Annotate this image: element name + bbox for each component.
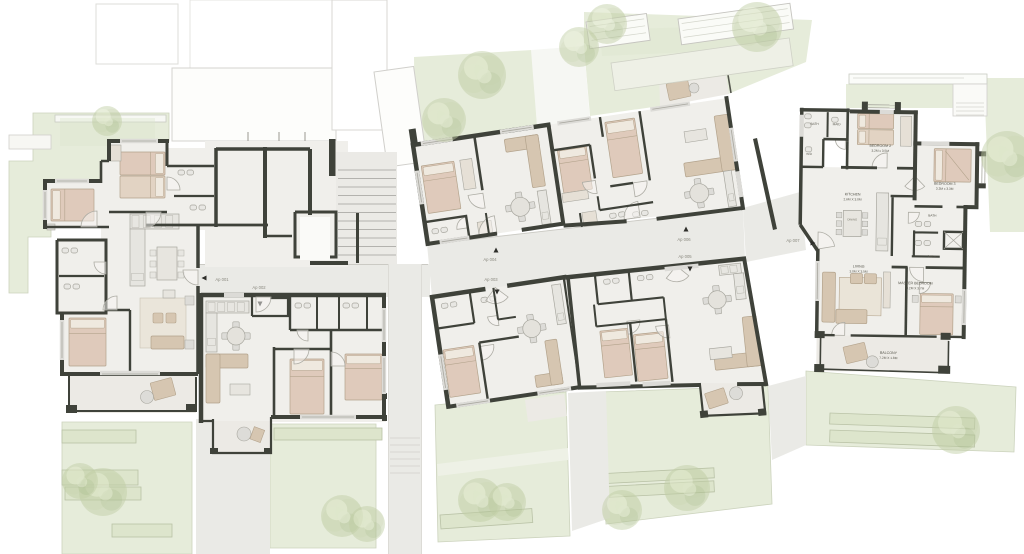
svg-text:MAID: MAID xyxy=(833,122,842,126)
svg-text:2.6M X 3.0M: 2.6M X 3.0M xyxy=(843,197,861,201)
svg-text:LIVING: LIVING xyxy=(853,264,865,268)
svg-text:3.2M X 3.7M: 3.2M X 3.7M xyxy=(906,286,924,290)
svg-text:Ap 003: Ap 003 xyxy=(484,277,498,282)
svg-text:Ap 001: Ap 001 xyxy=(215,277,229,282)
svg-text:BATH: BATH xyxy=(928,255,937,259)
svg-text:BEDROOM 2: BEDROOM 2 xyxy=(869,144,891,148)
svg-text:BATH: BATH xyxy=(810,122,819,126)
svg-text:BALCONY: BALCONY xyxy=(880,351,898,355)
svg-text:3.0M X 3.5M: 3.0M X 3.5M xyxy=(849,269,867,273)
svg-text:DINING: DINING xyxy=(847,217,857,221)
svg-text:Ap 006: Ap 006 xyxy=(677,237,691,242)
svg-text:7.2M X 1.8M: 7.2M X 1.8M xyxy=(879,356,897,360)
svg-text:W/D: W/D xyxy=(806,152,813,156)
svg-text:BEDROOM 3: BEDROOM 3 xyxy=(934,182,956,186)
svg-text:Ap 007: Ap 007 xyxy=(786,238,800,243)
svg-text:KITCHEN: KITCHEN xyxy=(845,192,861,196)
svg-text:Ap 002: Ap 002 xyxy=(252,285,266,290)
svg-text:MASTER BEDROOM: MASTER BEDROOM xyxy=(898,281,933,285)
svg-text:Ap 004: Ap 004 xyxy=(483,257,497,262)
svg-text:Ap 005: Ap 005 xyxy=(678,254,692,259)
svg-text:3.2M x 3.5M: 3.2M x 3.5M xyxy=(871,149,889,153)
svg-text:3.3M x 3.3M: 3.3M x 3.3M xyxy=(936,187,954,191)
svg-text:BATH: BATH xyxy=(928,214,937,218)
